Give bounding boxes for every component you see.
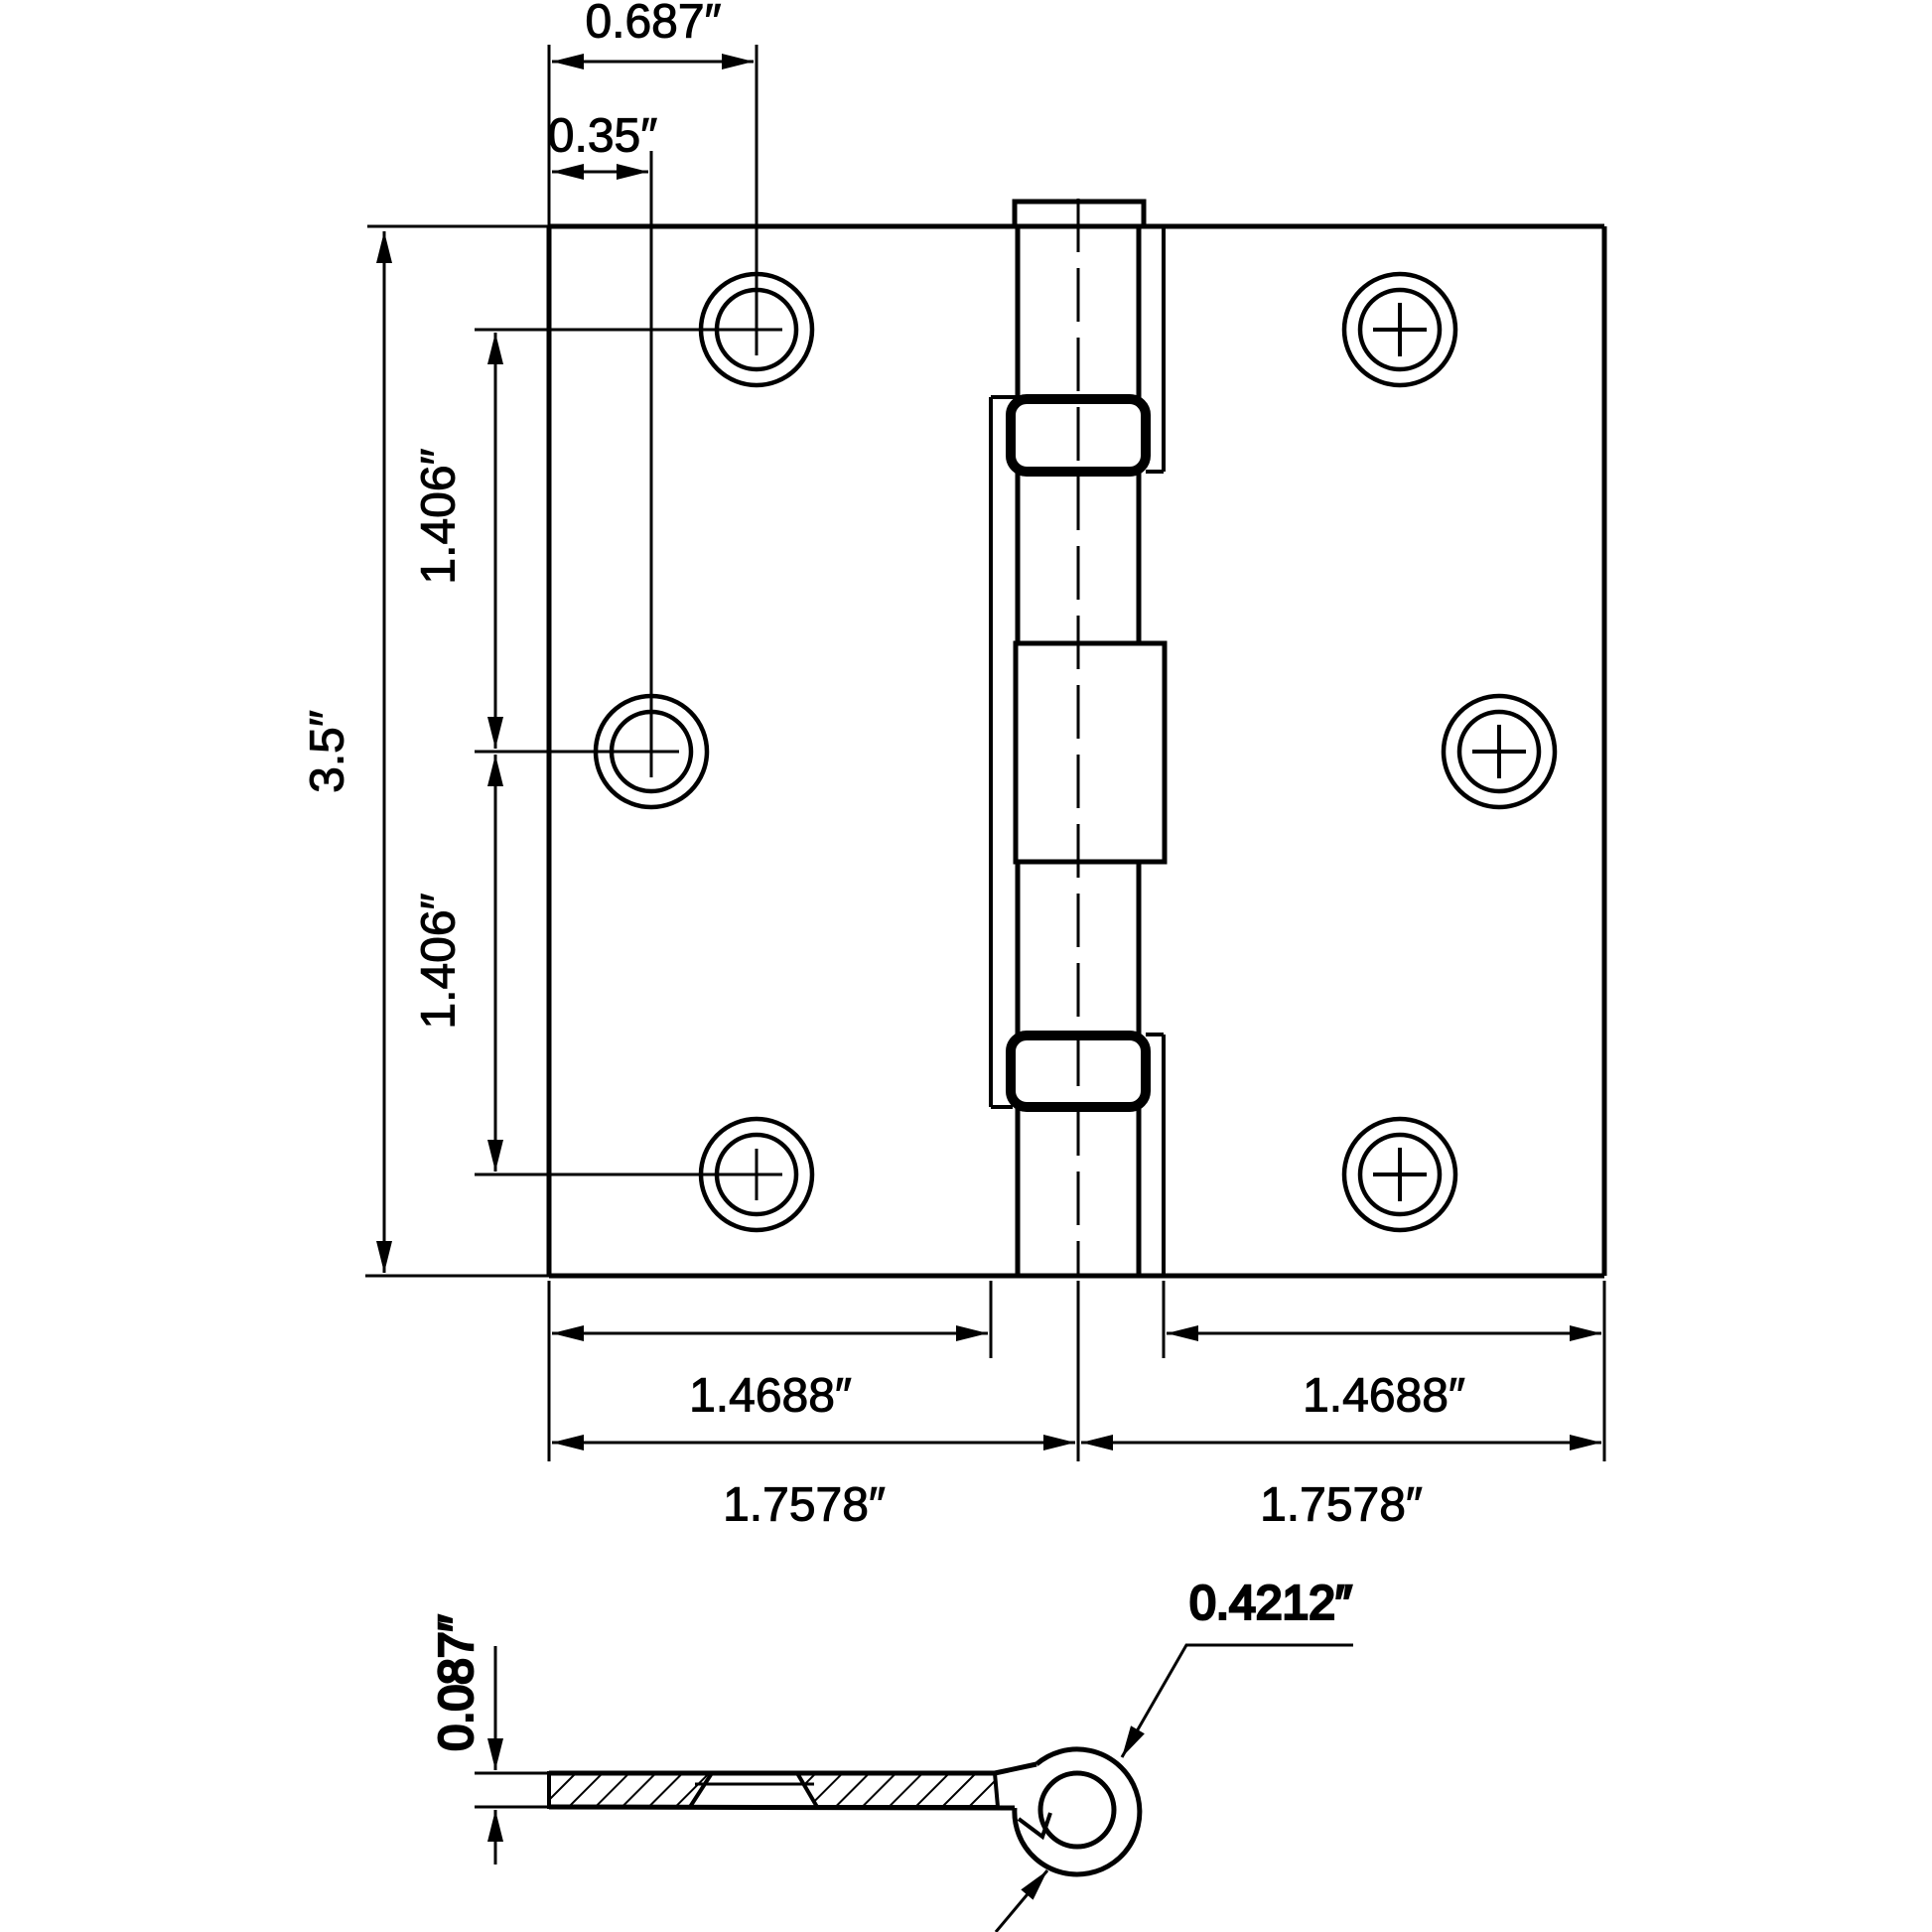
label-leaf-width-left: 1.4688″ <box>689 1370 852 1423</box>
hatch-section-right <box>797 1773 998 1807</box>
label-hole-spacing-upper: 1.406″ <box>413 448 466 584</box>
loop-outer-circle <box>1015 1749 1140 1874</box>
label-top-hole-offset: 0.687″ <box>585 0 721 49</box>
hinge-technical-drawing: 0.687″ 0.35″ 3.5″ 1.406″ 1.406″ 1.4688″ … <box>0 0 1932 1932</box>
label-leaf-width-right: 1.4688″ <box>1303 1370 1465 1423</box>
hinge-side-view: 0.087″ 0.4212″ <box>431 1578 1354 1932</box>
leader-line-diameter <box>1122 1645 1353 1757</box>
strip-bottom-edge <box>549 1807 1015 1808</box>
strip-to-loop-top <box>995 1764 1036 1773</box>
label-half-width-right: 1.7578″ <box>1260 1479 1423 1532</box>
label-half-width-left: 1.7578″ <box>723 1479 886 1532</box>
thickness-dimension: 0.087″ <box>431 1614 550 1864</box>
middle-knuckle <box>1016 643 1165 862</box>
loop-coil-end <box>1019 1813 1050 1837</box>
knuckle-diameter-leader: 0.4212″ <box>1122 1578 1353 1758</box>
label-knuckle-diameter: 0.4212″ <box>1189 1578 1352 1630</box>
knuckle-loop <box>1015 1749 1140 1874</box>
loop-inner-circle <box>1040 1773 1114 1847</box>
screw-hole-top-right <box>1344 274 1455 385</box>
drawing-canvas: 0.687″ 0.35″ 3.5″ 1.406″ 1.406″ 1.4688″ … <box>0 0 1932 1932</box>
screw-hole-bottom-right <box>1344 1119 1455 1230</box>
label-top-hole-offset-small: 0.35″ <box>548 110 657 163</box>
dimension-labels: 0.687″ 0.35″ 3.5″ 1.406″ 1.406″ 1.4688″ … <box>302 0 1465 1532</box>
hinge-front-view: 0.687″ 0.35″ 3.5″ 1.406″ 1.406″ 1.4688″ … <box>302 0 1605 1532</box>
leaf-cross-section <box>549 1764 1036 1808</box>
label-thickness: 0.087″ <box>431 1614 483 1750</box>
leader-line-bottom-cropped <box>996 1870 1047 1932</box>
label-hole-spacing-lower: 1.406″ <box>413 893 466 1029</box>
hatch-section-left <box>549 1773 712 1807</box>
hinge-barrel <box>991 199 1165 1276</box>
screw-hole-middle-right <box>1444 696 1555 807</box>
label-plate-height: 3.5″ <box>302 710 354 793</box>
